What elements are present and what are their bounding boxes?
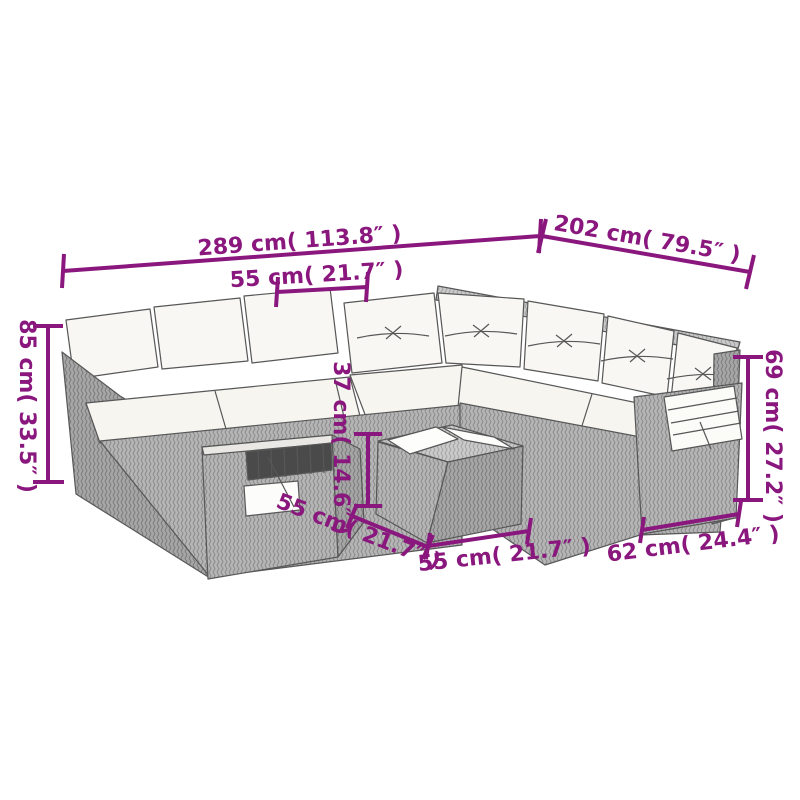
back-cushion — [154, 298, 248, 369]
dim-backrest-height: 85 cm( 33.5″ ) — [14, 319, 64, 493]
back-cushion — [438, 293, 524, 367]
dim-backrest-height-label: 85 cm( 33.5″ ) — [14, 319, 39, 493]
product-dimension-diagram: 289 cm( 113.8″ ) 202 cm( 79.5″ ) 55 cm( … — [0, 0, 800, 800]
back-cushion — [244, 288, 338, 363]
dim-overall-depth: 202 cm( 79.5″ ) — [538, 211, 754, 289]
dim-seat-section-width-label: 55 cm( 21.7″ ) — [229, 258, 404, 294]
dim-armrest-height-label: 69 cm( 27.2″ ) — [760, 349, 785, 523]
dim-overall-depth-label: 202 cm( 79.5″ ) — [552, 211, 743, 268]
right-armrest-tray — [664, 386, 742, 451]
